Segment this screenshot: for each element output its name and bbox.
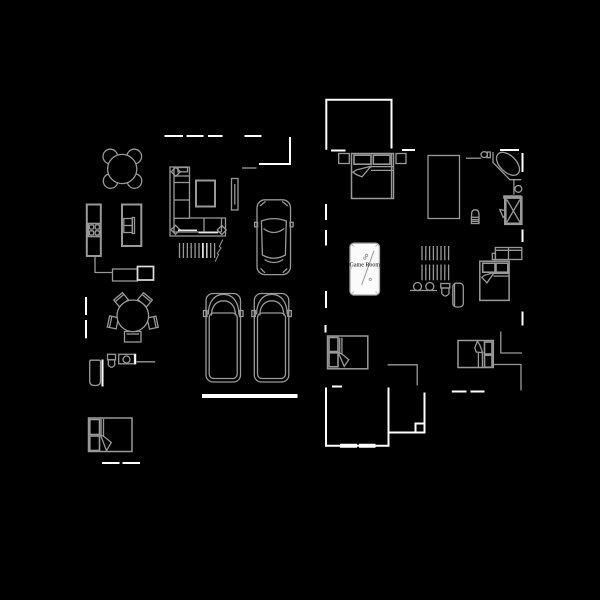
svg-text:Game Room: Game Room [350, 263, 381, 269]
